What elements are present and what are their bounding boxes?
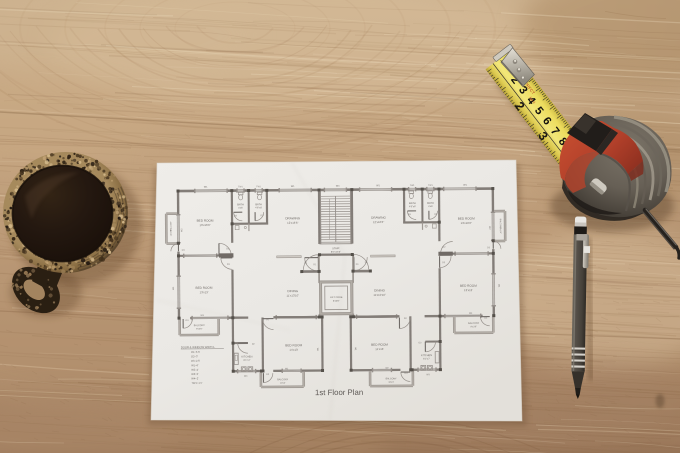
svg-text:TW1: TW1 <box>428 185 433 187</box>
svg-text:12'x16'6": 12'x16'6" <box>287 221 298 225</box>
svg-text:6'1"x7': 6'1"x7' <box>243 359 251 362</box>
svg-text:TW1: TW1 <box>238 186 243 188</box>
svg-text:TW1: TW1 <box>410 185 415 187</box>
svg-text:13'x16'6": 13'x16'6" <box>461 221 472 225</box>
svg-text:W1=6': W1=6' <box>191 363 199 367</box>
svg-text:13'x13': 13'x13' <box>464 288 473 292</box>
svg-text:LIFT CORE: LIFT CORE <box>330 296 343 299</box>
svg-text:6'x6'6": 6'x6'6" <box>333 301 340 303</box>
svg-text:4'6"x6': 4'6"x6' <box>255 206 263 209</box>
svg-text:D1=3.6': D1=3.6' <box>191 350 200 354</box>
svg-text:6'1"x7': 6'1"x7' <box>423 357 431 360</box>
svg-text:8'6"x16'6": 8'6"x16'6" <box>331 252 341 254</box>
svg-text:D3=2.6': D3=2.6' <box>191 359 200 363</box>
svg-text:W2=4': W2=4' <box>191 368 199 372</box>
svg-text:TW1: TW1 <box>256 186 261 188</box>
svg-text:11'x10'10": 11'x10'10" <box>373 293 386 297</box>
svg-text:10'x3'6": 10'x3'6" <box>499 227 501 234</box>
svg-text:13'x16'6": 13'x16'6" <box>199 223 210 227</box>
svg-text:10'x3'6": 10'x3'6" <box>171 229 173 236</box>
svg-text:12'x16'6": 12'x16'6" <box>373 220 384 224</box>
svg-text:W3=3': W3=3' <box>191 372 199 376</box>
svg-text:STAIR: STAIR <box>332 247 339 250</box>
svg-text:BALCONY: BALCONY <box>468 322 479 325</box>
svg-text:9'x3'6": 9'x3'6" <box>196 328 203 330</box>
svg-text:W4=2': W4=2' <box>191 376 199 380</box>
svg-text:13'x13': 13'x13' <box>200 290 209 294</box>
svg-text:1st Floor Plan: 1st Floor Plan <box>315 388 363 397</box>
svg-text:DOOR & WINDOW WIDTH:-: DOOR & WINDOW WIDTH:- <box>181 345 215 349</box>
svg-text:TW1=1.5': TW1=1.5' <box>191 381 203 385</box>
svg-text:11'x13'10": 11'x13'10" <box>287 293 300 297</box>
svg-text:4'x6': 4'x6' <box>428 205 433 208</box>
svg-text:4'6"x6': 4'6"x6' <box>409 205 417 208</box>
svg-text:9'x3'6": 9'x3'6" <box>471 326 478 328</box>
svg-text:BALCONY: BALCONY <box>277 378 288 381</box>
svg-text:BALCONY: BALCONY <box>386 377 397 380</box>
svg-text:4'x6': 4'x6' <box>238 207 243 210</box>
svg-text:BALCONY: BALCONY <box>194 324 205 327</box>
svg-text:10'x3': 10'x3' <box>388 382 394 384</box>
svg-text:10'x3': 10'x3' <box>280 383 286 385</box>
svg-text:14'x13': 14'x13' <box>375 347 384 351</box>
svg-text:14'x13': 14'x13' <box>289 348 298 352</box>
svg-text:D2=3': D2=3' <box>191 354 198 358</box>
